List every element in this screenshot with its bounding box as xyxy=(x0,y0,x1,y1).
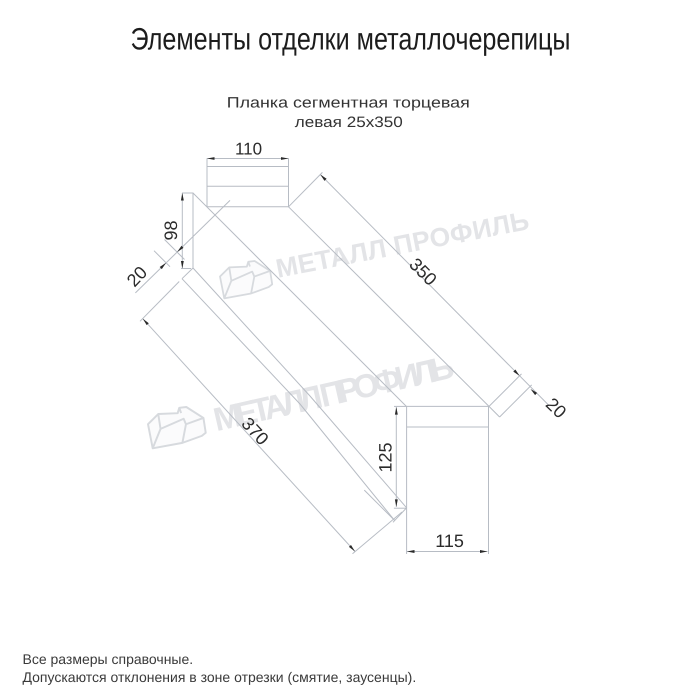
svg-text:Элементы отделки металлочерепи: Элементы отделки металлочерепицы xyxy=(131,22,571,57)
svg-text:115: 115 xyxy=(435,531,464,551)
svg-text:125: 125 xyxy=(376,442,396,472)
svg-text:98: 98 xyxy=(161,220,181,240)
svg-text:Планка сегментная торцевая: Планка сегментная торцевая xyxy=(227,95,470,112)
svg-text:Все размеры справочные.: Все размеры справочные. xyxy=(23,651,194,667)
svg-text:110: 110 xyxy=(235,139,262,158)
svg-text:Допускаются отклонения в зоне: Допускаются отклонения в зоне отрезки (с… xyxy=(23,669,417,685)
svg-text:левая 25х350: левая 25х350 xyxy=(295,114,403,131)
